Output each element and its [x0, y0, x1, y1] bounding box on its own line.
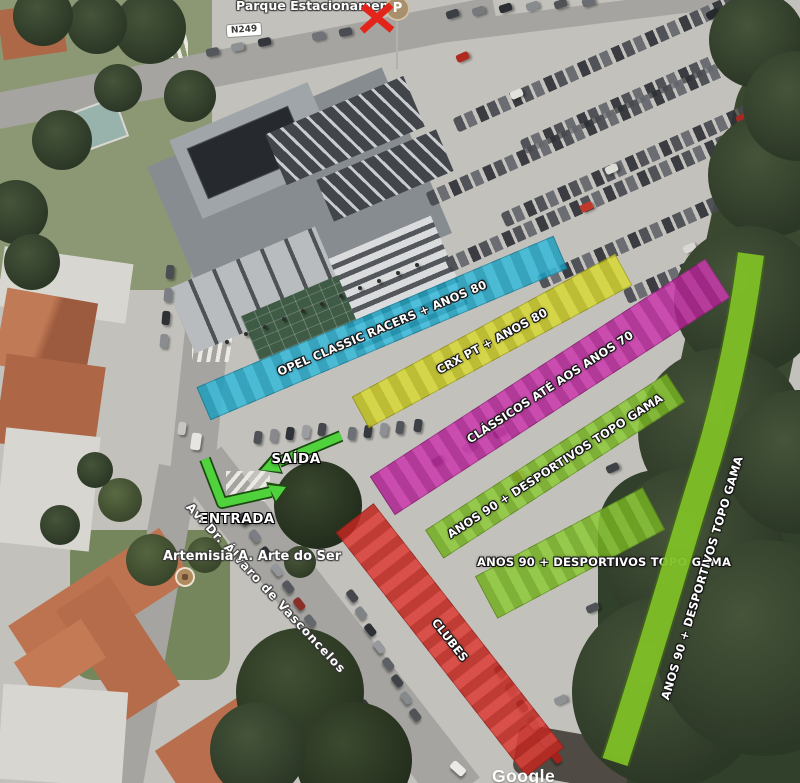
car — [585, 602, 600, 614]
car — [159, 334, 168, 349]
bollard — [282, 317, 286, 321]
car — [190, 432, 202, 450]
car — [525, 0, 540, 11]
car — [281, 580, 295, 595]
poi-label: Artemisia A. Arte do Ser — [163, 549, 341, 564]
car — [301, 424, 311, 438]
car — [163, 288, 172, 303]
car — [161, 311, 170, 326]
bollard — [339, 294, 343, 298]
car — [270, 563, 284, 578]
google-watermark[interactable]: Google — [492, 766, 555, 783]
car — [395, 420, 405, 434]
bollard — [415, 263, 419, 267]
car — [248, 529, 262, 544]
bollard — [263, 325, 267, 329]
road-badge-n249: N249 — [226, 22, 263, 39]
poi-pin[interactable] — [177, 569, 193, 585]
car — [445, 8, 460, 19]
tree — [4, 234, 60, 290]
car — [471, 5, 486, 16]
car — [498, 2, 513, 13]
car — [354, 606, 368, 621]
car — [165, 265, 174, 280]
tree — [13, 0, 73, 46]
bollard — [377, 279, 381, 283]
car — [253, 430, 263, 444]
car — [363, 623, 377, 638]
car — [205, 47, 219, 57]
zone-anos90-block-label: ANOS 90 + DESPORTIVOS TOPO GAMA — [477, 555, 731, 569]
tree — [164, 70, 216, 122]
car — [177, 421, 187, 435]
car — [381, 657, 395, 672]
car — [379, 422, 389, 436]
bollard — [244, 332, 248, 336]
car — [579, 201, 594, 213]
bollard — [358, 286, 362, 290]
car — [604, 163, 619, 175]
car — [317, 422, 327, 436]
car — [413, 418, 423, 432]
car — [390, 674, 404, 689]
car — [455, 51, 470, 63]
tree — [77, 452, 113, 488]
car — [372, 640, 386, 655]
car — [449, 759, 467, 776]
aerial-map: OPEL CLASSIC RACERS + ANOS 80 CRX PT + A… — [0, 0, 800, 783]
car — [338, 27, 352, 37]
car — [345, 589, 359, 604]
car — [408, 708, 422, 723]
car — [605, 462, 620, 474]
tree — [32, 110, 92, 170]
car — [581, 0, 596, 8]
car — [311, 31, 325, 41]
exit-label: SAÍDA — [271, 451, 320, 467]
car — [553, 0, 568, 10]
car — [347, 426, 357, 440]
tree — [94, 64, 142, 112]
car — [257, 37, 271, 47]
car — [285, 426, 295, 440]
bollard — [301, 309, 305, 313]
car — [509, 88, 524, 100]
bollard — [320, 302, 324, 306]
bollard — [225, 340, 229, 344]
car — [230, 42, 244, 52]
poi-pin-glyph — [182, 574, 188, 580]
crossed-out-x-icon — [357, 0, 397, 36]
bollard — [396, 271, 400, 275]
car — [269, 428, 279, 442]
car — [399, 691, 413, 706]
car — [553, 694, 568, 706]
tree — [40, 505, 80, 545]
